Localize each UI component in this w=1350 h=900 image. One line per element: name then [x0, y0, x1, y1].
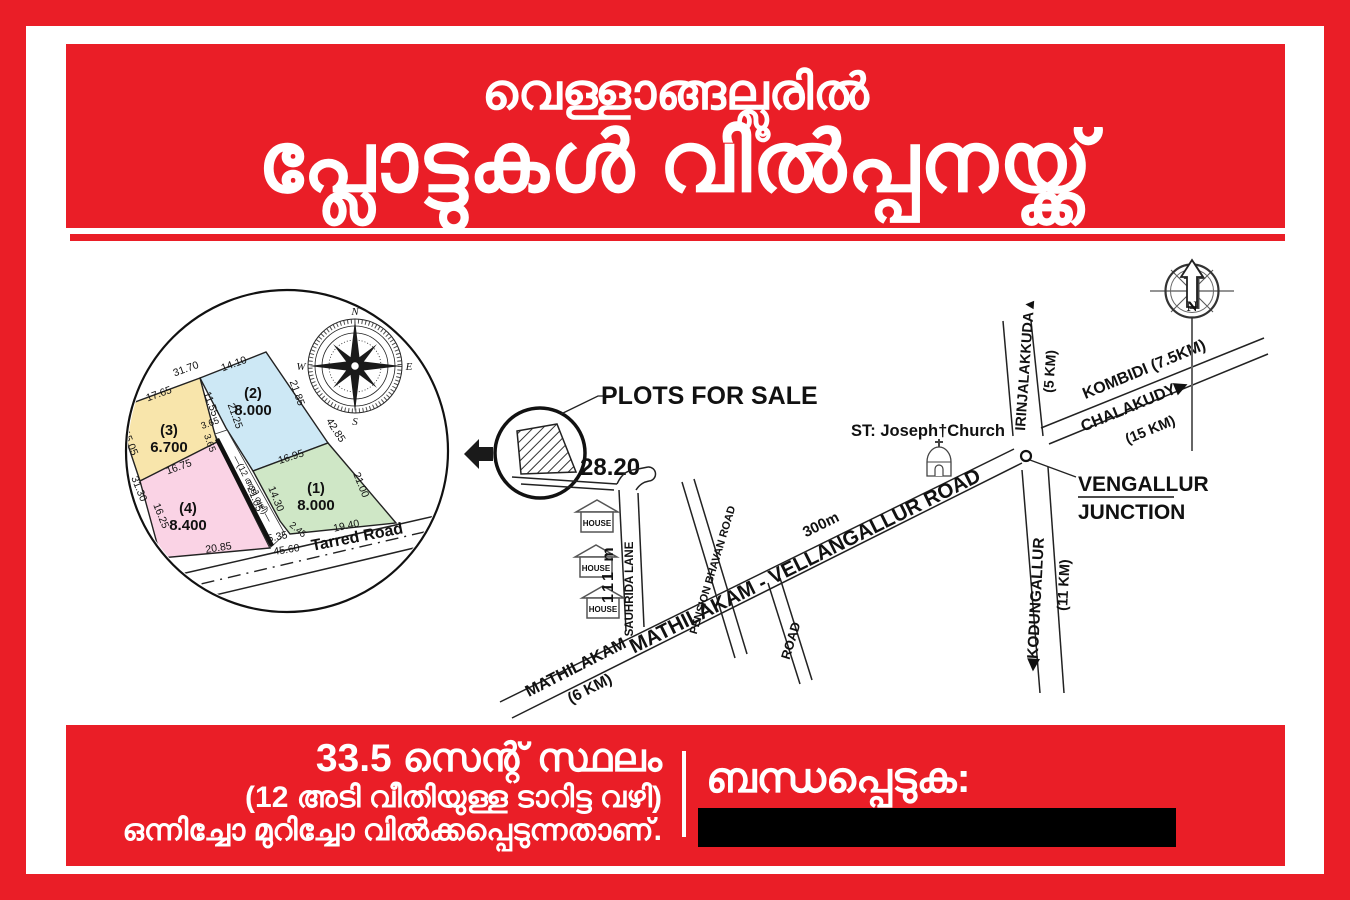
footer-banner: 33.5 സെന്റ് സ്ഥലം (12 അടി വീതിയുള്ള ടാറി… — [66, 725, 1285, 866]
footer-contact: ബന്ധപ്പെടുക: — [698, 725, 1285, 866]
plot-4-area: 8.400 — [169, 517, 207, 534]
sauhrida-lane-label: SAUHRIDA LANE — [624, 541, 636, 636]
plot-4-id: (4) — [179, 501, 197, 517]
main-road-label: MATHILAKAM - VELLANGALLUR ROAD — [626, 464, 984, 658]
plot-2-id: (2) — [244, 386, 262, 402]
compass-west-label: W — [296, 361, 306, 373]
header-title-line: പ്ലോട്ടുകൾ വിൽപ്പനയ്ക്ക് — [258, 118, 1093, 206]
junction-label: JUNCTION — [1078, 501, 1185, 524]
plot-detail-inset: —(12 അടി വഴി)— (1) 8.000 (2) 8.000 (3) 6… — [116, 290, 452, 612]
plot-3-area: 6.700 — [150, 439, 188, 456]
footer-details: 33.5 സെന്റ് സ്ഥലം (12 അടി വീതിയുള്ള ടാറി… — [66, 725, 662, 866]
junction-node-icon — [1021, 451, 1031, 461]
irinjalakkuda-distance-label: (5 KM) — [1040, 349, 1059, 393]
footer-road-line: (12 അടി വീതിയുള്ള ടാറിട്ട വഴി) — [66, 781, 662, 815]
kodungallur-label: ◀KODUNGALLUR — [1024, 537, 1048, 672]
footer-sale-line: ഒന്നിച്ചോ മുറിച്ചോ വിൽക്കപ്പെടുന്നതാണ്. — [66, 814, 662, 848]
compass-north-label: N — [350, 306, 359, 318]
contact-label: ബന്ധപ്പെടുക: — [706, 757, 1285, 799]
header-underline — [70, 234, 1285, 241]
zoom-left-arrow-icon — [464, 439, 493, 469]
sale-poster: വെള്ളാങ്ങല്ലൂരിൽ പ്ലോട്ടുകൾ വിൽപ്പനയ്ക്ക… — [0, 0, 1350, 900]
house-label: HOUSE — [589, 605, 618, 614]
compass-east-label: E — [405, 361, 413, 373]
lane-length-label: 111 m — [600, 544, 617, 603]
church-icon — [927, 439, 951, 476]
compass-south-label: S — [352, 416, 358, 428]
header-location-line: വെള്ളാങ്ങല്ലൂരിൽ — [482, 66, 869, 119]
north-letter: N — [1187, 299, 1198, 315]
kodungallur-distance-label: (11 KM) — [1055, 559, 1074, 612]
irinjalakkuda-label: IRINJALAKKUDA▲ — [1013, 297, 1038, 431]
redacted-phone-bar — [698, 808, 1176, 847]
junction-leader — [1030, 460, 1076, 477]
chalakudy-distance-label: (15 KM) — [1123, 413, 1178, 448]
plots-for-sale-label: PLOTS FOR SALE — [601, 382, 818, 410]
plot-1-id: (1) — [307, 481, 325, 497]
house-icon: HOUSE — [576, 500, 618, 532]
plot-3-id: (3) — [160, 423, 178, 439]
house-label: HOUSE — [583, 519, 612, 528]
footer-divider — [682, 751, 686, 837]
header-banner: വെള്ളാങ്ങല്ലൂരിൽ പ്ലോട്ടുകൾ വിൽപ്പനയ്ക്ക… — [66, 44, 1285, 228]
footer-area-line: 33.5 സെന്റ് സ്ഥലം — [66, 738, 662, 781]
plot-1-area: 8.000 — [297, 497, 335, 514]
vengallur-label: VENGALLUR — [1078, 473, 1209, 496]
location-map: —(12 അടി വഴി)— (1) 8.000 (2) 8.000 (3) 6… — [66, 241, 1285, 725]
map-area: —(12 അടി വഴി)— (1) 8.000 (2) 8.000 (3) 6… — [66, 241, 1285, 725]
church-label: ST: Joseph†Church — [851, 422, 1005, 440]
frontage-value: 28.20 — [580, 454, 640, 481]
